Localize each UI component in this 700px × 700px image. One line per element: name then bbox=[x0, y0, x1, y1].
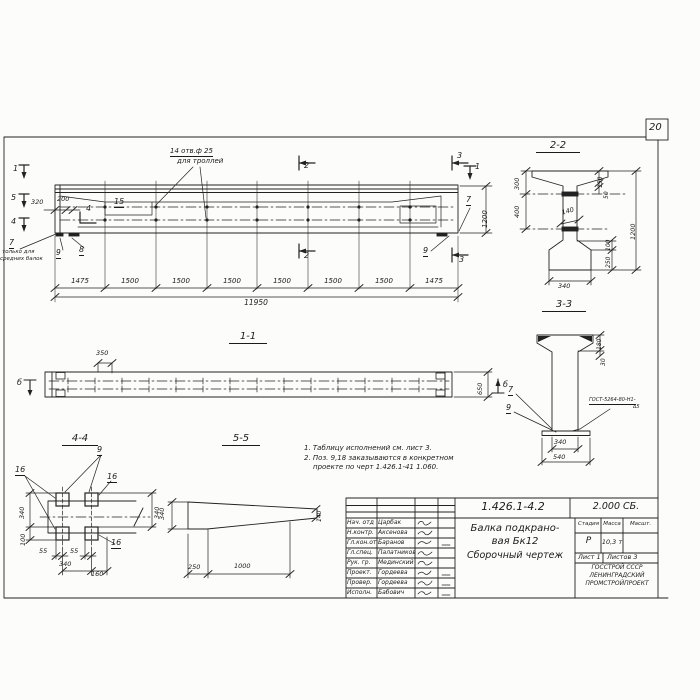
pos-8-left: 8 bbox=[79, 246, 84, 256]
staff-role: Исполн. bbox=[347, 590, 372, 596]
dim-30: 30 bbox=[601, 358, 607, 366]
staff-name: Бабович bbox=[378, 590, 404, 596]
pos-9-44: 9 bbox=[97, 446, 102, 456]
drawing-sheet: 20 1 5 4 320 200 15 4 14 отв.ф 25 для тр… bbox=[0, 0, 700, 700]
note-only-line1: только для bbox=[2, 250, 34, 256]
staff-name: Аксенова bbox=[378, 530, 408, 536]
staff-role: Гл.кон.от bbox=[347, 540, 376, 546]
dim-segment: 1475 bbox=[65, 278, 95, 285]
bearing-plate-left-1 bbox=[56, 233, 63, 236]
staff-role: Рук. гр. bbox=[347, 560, 370, 566]
view-5-5-title: 5-5 bbox=[222, 434, 260, 446]
dim-180: 180 bbox=[597, 339, 603, 350]
dim-250-55: 250 bbox=[188, 564, 200, 571]
staff-role: Проект. bbox=[347, 570, 372, 576]
beam-title-line2: вая Бк12 bbox=[457, 537, 573, 547]
dim-300: 300 bbox=[514, 178, 521, 190]
dim-340-44-left: 340 bbox=[19, 507, 26, 519]
staff-name: Царбак bbox=[378, 520, 401, 526]
sheet-number: Лист 1 bbox=[578, 554, 601, 561]
pos-16-right: 16 bbox=[107, 473, 117, 483]
dim-400: 400 bbox=[514, 206, 521, 218]
org-line3: ПРОМСТРОЙПРОЕКТ bbox=[577, 581, 657, 587]
dim-340-22: 340 bbox=[558, 283, 570, 290]
dim-340-33: 340 bbox=[554, 439, 566, 446]
view-4-4-title: 4-4 bbox=[62, 434, 98, 446]
pos-7-left: 7 bbox=[9, 239, 14, 249]
dim-340-44-bottom: 340 bbox=[59, 561, 71, 568]
pos-15: 15 bbox=[114, 198, 124, 208]
note-3: проекте по черт 1.426.1-41 1.060. bbox=[313, 464, 438, 471]
org-line1: ГОССТРОЙ СССР bbox=[577, 565, 657, 571]
stage-value: Р bbox=[576, 537, 601, 546]
cut-label-b-left: б bbox=[17, 379, 22, 387]
pos-9-right: 9 bbox=[423, 247, 428, 257]
section-1-1 bbox=[24, 360, 492, 401]
cut-label-3-bottom: 3 bbox=[459, 256, 464, 264]
note-only-line2: средних балок bbox=[0, 257, 43, 263]
sheets-total: Листов 3 bbox=[607, 554, 637, 561]
staff-name: Баранов bbox=[378, 540, 404, 546]
staff-role: Гл.спец. bbox=[347, 550, 373, 556]
staff-role: Нач. отд bbox=[347, 520, 374, 526]
org-line2: ЛЕНИНГРАДСКИЙ bbox=[577, 573, 657, 579]
dim-segment: 1500 bbox=[115, 278, 145, 285]
dim-350: 350 bbox=[96, 350, 108, 357]
hole-note-line2: для троллей bbox=[177, 158, 223, 165]
header-mass: Масса bbox=[601, 522, 623, 528]
dim-160-44: 160 bbox=[91, 571, 103, 578]
cut-label-4-left: 4 bbox=[11, 218, 16, 226]
doc-number: 1.426.1-4.2 bbox=[458, 501, 568, 512]
note-2: 2. Поз. 9,18 заказываются в конкретном bbox=[304, 455, 454, 462]
header-scale: Масшт. bbox=[623, 522, 658, 528]
trolley-hole-centerlines bbox=[60, 207, 455, 220]
dim-55-a: 55 bbox=[39, 548, 47, 555]
dim-50: 50 bbox=[604, 191, 610, 199]
note-1: 1. Таблицу исполнений см. лист 3. bbox=[304, 445, 432, 452]
dim-total: 11950 bbox=[226, 299, 286, 307]
pos-16-bottom: 16 bbox=[111, 539, 121, 549]
cut-label-1-right: 1 bbox=[475, 163, 480, 171]
cut-label-1-left: 1 bbox=[13, 165, 18, 173]
staff-role: Провер. bbox=[347, 580, 372, 586]
staff-name: Мединский bbox=[378, 560, 414, 566]
pos-7-33: 7 bbox=[508, 386, 513, 396]
dim-100: 100 bbox=[606, 240, 612, 251]
dim-segment: 1500 bbox=[318, 278, 348, 285]
section-2-2-title: 2-2 bbox=[536, 141, 580, 153]
bearing-plate-left-2 bbox=[69, 233, 79, 236]
weld-note-line1: ГОСТ-5264-80-Н1- bbox=[589, 398, 636, 405]
staff-role: Н.контр. bbox=[347, 530, 374, 536]
hole-note-line1: 14 отв.ф 25 bbox=[170, 148, 213, 157]
section-1-1-title: 1-1 bbox=[229, 332, 267, 344]
page-number: 20 bbox=[649, 123, 667, 133]
trolley-holes bbox=[103, 205, 411, 221]
beam-title-line1: Балка подкрано- bbox=[457, 524, 573, 534]
cut-label-b-right: б bbox=[503, 381, 508, 389]
bearing-plate-right bbox=[437, 233, 447, 236]
staff-name: Гордеева bbox=[378, 580, 408, 586]
dim-140-55: 140 bbox=[317, 511, 323, 522]
pos-7-right: 7 bbox=[466, 196, 471, 206]
dim-segment: 1500 bbox=[217, 278, 247, 285]
section-2-2 bbox=[520, 168, 641, 286]
dim-1200-elev: 1200 bbox=[482, 210, 489, 228]
cut-label-2-top: 2 bbox=[304, 162, 309, 170]
dim-320: 320 bbox=[31, 199, 43, 206]
dim-200: 200 bbox=[57, 196, 69, 203]
header-stage: Стадия bbox=[576, 522, 601, 528]
cut-label-4-inner: 4 bbox=[86, 205, 91, 213]
dim-1000-55: 1000 bbox=[234, 563, 251, 570]
dim-segment: 1500 bbox=[166, 278, 196, 285]
dim-540-33: 540 bbox=[553, 454, 565, 461]
dim-1200-22: 1200 bbox=[630, 223, 637, 240]
cut-label-3-top: 3 bbox=[457, 152, 462, 160]
cut-label-2-bottom: 2 bbox=[304, 252, 309, 260]
rebar-ticks bbox=[68, 378, 419, 392]
section-3-3-title: 3-3 bbox=[542, 300, 586, 312]
view-4-4 bbox=[25, 455, 156, 575]
dim-150: 150 bbox=[598, 177, 604, 188]
dim-650: 650 bbox=[477, 383, 484, 395]
dim-340-55: 340 bbox=[159, 508, 166, 520]
pos-9-33: 9 bbox=[506, 404, 511, 414]
mass-value: 10,3 т bbox=[599, 539, 625, 546]
pos-9-left: 9 bbox=[56, 249, 61, 259]
dim-segment: 1500 bbox=[267, 278, 297, 285]
weld-note-line2: ∆5 bbox=[633, 405, 640, 410]
dim-250: 250 bbox=[606, 257, 612, 268]
dim-segment: 1475 bbox=[419, 278, 449, 285]
dim-segment: 1500 bbox=[369, 278, 399, 285]
doc-code: 2.000 СБ. bbox=[576, 502, 656, 512]
staff-name: Палатников bbox=[378, 550, 416, 556]
beam-title-line3: Сборочный чертеж bbox=[457, 551, 573, 561]
dim-100-44: 100 bbox=[20, 534, 27, 546]
dim-55-b: 55 bbox=[70, 548, 78, 555]
staff-name: Гордеева bbox=[378, 570, 408, 576]
cut-label-5-left: 5 bbox=[11, 194, 16, 202]
pos-16-left: 16 bbox=[15, 466, 25, 476]
